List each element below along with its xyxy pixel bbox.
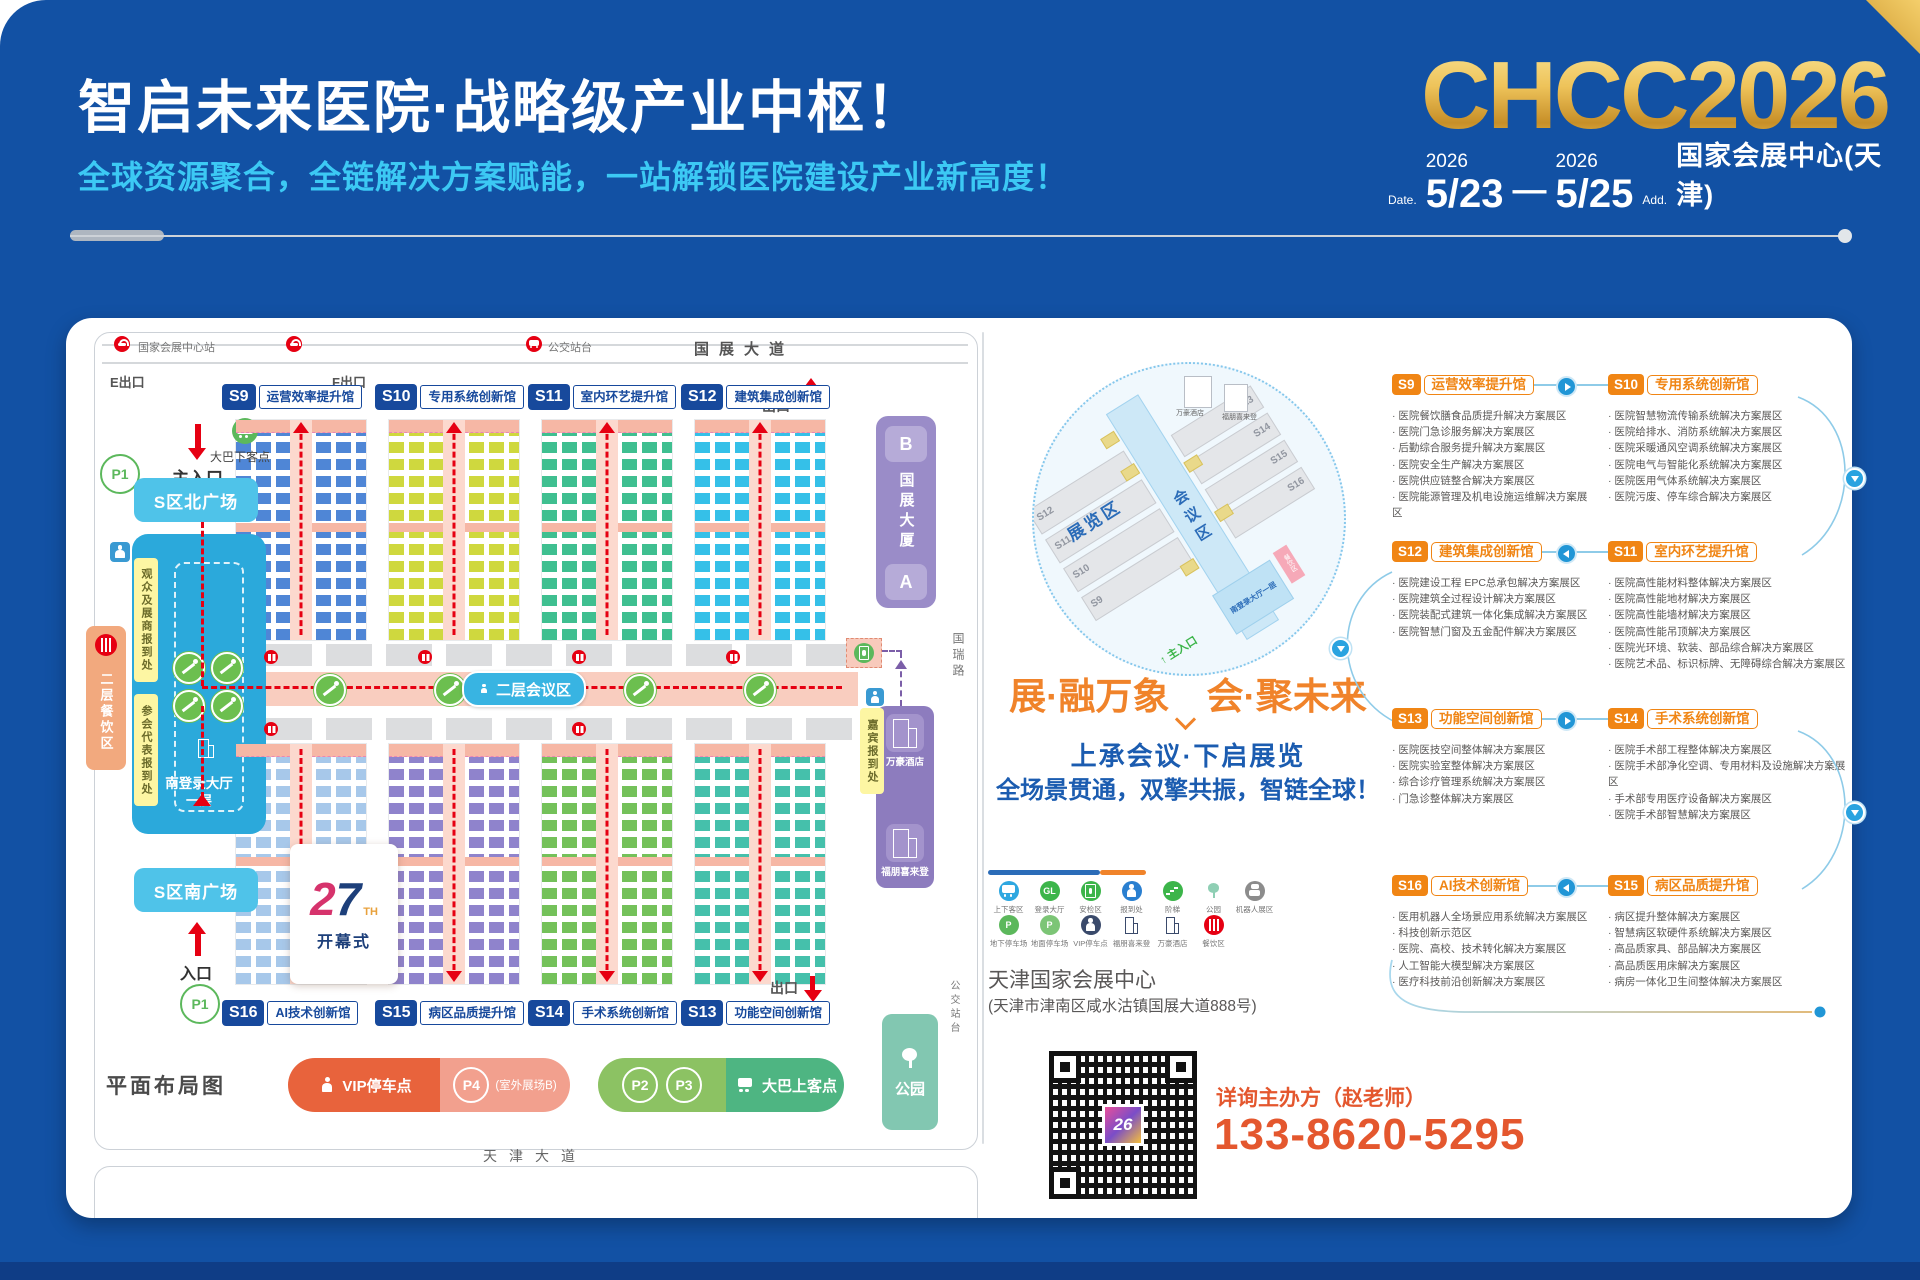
- opening-ceremony-box: 27TH 开幕式: [290, 844, 398, 984]
- hall-label-s13: S13功能空间创新馆: [681, 1000, 830, 1026]
- marriott-hotel-icon: [886, 714, 924, 752]
- hotels-block: 万豪酒店 福朋喜来登: [876, 706, 934, 888]
- hall-block-s13: [695, 744, 825, 984]
- ground-parking-icon: P: [1040, 915, 1060, 935]
- vip-route-arrow: [895, 660, 907, 669]
- legend-item: VIP停车点: [1070, 915, 1111, 949]
- p2-icon: P2: [622, 1067, 658, 1103]
- fourpoints-hotel-icon: [886, 824, 924, 862]
- stairs-icon: [1163, 881, 1183, 901]
- chcc2026-logo: CHCC2026: [1388, 48, 1888, 144]
- hall-card-s16: S16AI技术创新馆: [1392, 875, 1528, 896]
- route-dashed-line: [201, 522, 204, 686]
- metro-icon: [114, 336, 130, 352]
- hall-block-s11: [542, 420, 672, 640]
- hall-card-s9: S9运营效率提升馆: [1392, 374, 1534, 395]
- legend-item: P地面停车场: [1029, 915, 1070, 949]
- venue-minimap: S12 S11 S10 S9 S13 S14 S15 S16 展览区 会议区 南…: [1032, 362, 1346, 676]
- hall-label-s12: S12建筑集成创新馆: [681, 384, 830, 410]
- meeting-rooms-row: [206, 644, 856, 666]
- legend-item: 报到处: [1111, 881, 1152, 915]
- divider-dot: [1838, 229, 1852, 243]
- qr-finder: [1049, 1051, 1081, 1083]
- restroom-icon: [726, 650, 740, 664]
- security-gate-icon: [1081, 881, 1101, 901]
- floorplan-map: 国家会展中心站 公交站台 国展大道 E出口 F出口 S9运营效率提升馆S10专用…: [94, 332, 976, 1148]
- opening-logo: 2: [310, 873, 336, 925]
- legend-row-2: P地下停车场P地面停车场VIP停车点福朋喜来登万豪酒店餐饮区: [988, 915, 1234, 949]
- legend-item: 公园: [1193, 881, 1234, 915]
- route-arrow-head: [193, 794, 211, 806]
- legend-item: 安检区: [1070, 881, 1111, 915]
- hall-block-s12: [695, 420, 825, 640]
- hall-card-s12: S12建筑集成创新馆: [1392, 541, 1542, 562]
- legend-item: P地下停车场: [988, 915, 1029, 949]
- park-box: 公园: [882, 1014, 938, 1130]
- hall-label-s16: S16AI技术创新馆: [222, 1000, 358, 1026]
- security-check-box: [846, 638, 882, 668]
- connector-arrow-icon: [1556, 710, 1577, 731]
- minimap-hotel-building: [1184, 376, 1212, 408]
- building-icon: [194, 736, 218, 760]
- road-label-guozhan-avenue: 国展大道: [694, 338, 794, 359]
- arc-chevron-down: [1844, 468, 1865, 489]
- qr-center-logo: 26: [1102, 1104, 1144, 1146]
- minimap-hotel-label: 万豪酒店: [1176, 408, 1204, 418]
- hall-label-s9: S9运营效率提升馆: [222, 384, 362, 410]
- dining-icon: [95, 634, 117, 656]
- bus-drop-label: 大巴下客点: [210, 448, 270, 465]
- exit-e-label: E出口: [110, 372, 145, 391]
- exit-bottom-label: 出口: [770, 978, 798, 998]
- day-end: 5/25: [1556, 174, 1634, 214]
- legend-item: 机器人展区: [1234, 881, 1275, 915]
- arc-chevron-down: [1330, 638, 1351, 659]
- qr-code: 26: [1044, 1046, 1202, 1204]
- venue-name-text: 天津国家会展中心: [988, 964, 1156, 994]
- south-plaza: S区南广场: [134, 868, 258, 912]
- entrance-arrow: [195, 932, 201, 956]
- dining-icon: [1204, 915, 1224, 935]
- contact-label: 详询主办方（赵老师）: [1216, 1082, 1426, 1112]
- security-gate-icon: [854, 643, 874, 663]
- road-label-guorui: 国瑞路: [950, 632, 967, 680]
- registration-icon: [1122, 881, 1142, 901]
- legend-item: GL登录大厅: [1029, 881, 1070, 915]
- bus-icon: [999, 881, 1019, 901]
- connector-arrow-icon: [1556, 877, 1577, 898]
- legend-row-1: 上下客区GL登录大厅安检区报到处阶梯公园机器人展区: [988, 881, 1275, 915]
- legend-item: 上下客区: [988, 881, 1029, 915]
- people-icon: [477, 682, 491, 696]
- bus-stop-icon: [526, 336, 542, 352]
- restroom-icon: [264, 650, 278, 664]
- hall-label-s14: S14手术系统创新馆: [528, 1000, 677, 1026]
- restroom-icon: [418, 650, 432, 664]
- p4-icon: P4: [453, 1067, 489, 1103]
- legend-item: 阶梯: [1152, 881, 1193, 915]
- vip-parking-pill: VIP停车点 P4 (室外展场B): [288, 1058, 570, 1112]
- hall-label-s11: S11室内环艺提升馆: [528, 384, 676, 410]
- year-start: 2026: [1426, 152, 1504, 171]
- venue-address: (天津市津南区咸水沽镇国展大道888号): [988, 994, 1257, 1016]
- legend-divider-blue: [988, 870, 1100, 875]
- marriott-hotel-icon: [1163, 915, 1183, 935]
- bus-platform-label: 公交站台: [946, 980, 961, 1036]
- restroom-icon: [110, 542, 130, 562]
- park-icon: [1204, 881, 1224, 901]
- guozhan-tower: B 国展大厦 A: [876, 416, 936, 608]
- connector-arrow-icon: [1556, 376, 1577, 397]
- fourpoints-label: 福朋喜来登: [876, 864, 934, 878]
- vip-route-dashed: [882, 650, 902, 652]
- escalator-icon: [211, 690, 243, 722]
- vip-parking-icon: [1081, 915, 1101, 935]
- listing-connector-arcs: [1300, 360, 1920, 1040]
- hall-card-s10: S10专用系统创新馆: [1608, 374, 1758, 395]
- road-strip: [94, 1166, 978, 1218]
- second-floor-dining: 二层餐饮区: [86, 626, 126, 770]
- hall-label-s10: S10专用系统创新馆: [375, 384, 524, 410]
- hall-card-s13: S13功能空间创新馆: [1392, 708, 1542, 729]
- hall-card-s11: S11室内环艺提升馆: [1608, 541, 1757, 562]
- venue-name: 国家会展中心(天津): [1676, 134, 1888, 212]
- main-entrance-arrow-head: [188, 448, 206, 460]
- page-title: 智启未来医院·战略级产业中枢！: [78, 62, 925, 144]
- hall-card-s14: S14手术系统创新馆: [1608, 708, 1758, 729]
- date-label: Date.: [1388, 193, 1417, 207]
- restroom-icon: [572, 722, 586, 736]
- bus-pickup-icon: [733, 1073, 757, 1097]
- bus-stop-label: 公交站台: [548, 339, 592, 355]
- restroom-icon: [572, 650, 586, 664]
- hall-block-s10: [389, 420, 519, 640]
- visitor-registration-label: 观众及展商报到处: [134, 558, 158, 682]
- restroom-icon: [264, 722, 278, 736]
- page-subtitle: 全球资源聚合，全链解决方案赋能，一站解锁医院建设产业新高度！: [78, 152, 1068, 198]
- escalator-icon: [744, 674, 776, 706]
- bottom-band: [0, 1262, 1920, 1280]
- vip-person-icon: [316, 1074, 338, 1096]
- metro-icon: [286, 336, 302, 352]
- addr-label: Add.: [1642, 193, 1667, 207]
- contact-phone: 133-8620-5295: [1214, 1110, 1525, 1160]
- delegate-registration-label: 参会代表报到处: [134, 694, 158, 806]
- legend-item: 餐饮区: [1193, 915, 1234, 949]
- vip-registration-label: 嘉宾报到处: [860, 708, 884, 794]
- escalator-icon: [314, 674, 346, 706]
- hall-block-s14: [542, 744, 672, 984]
- minimap-hotel-building: [1224, 384, 1248, 412]
- minimap-entrance-label: ↑ 主入口: [1157, 632, 1201, 668]
- marriott-label: 万豪酒店: [876, 754, 934, 768]
- entrance-label: 入口: [180, 960, 212, 984]
- tower-a-block: A: [885, 564, 927, 600]
- plan-title: 平面布局图: [106, 1070, 226, 1100]
- legend-divider-orange: [1100, 870, 1146, 875]
- route-dashed-line: [201, 706, 204, 798]
- tower-label: 国展大厦: [876, 468, 936, 556]
- p3-icon: P3: [666, 1067, 702, 1103]
- lobby-label: 南登录大厅: [152, 772, 246, 792]
- p1-parking-icon: P1: [180, 984, 220, 1024]
- legend-item: 万豪酒店: [1152, 915, 1193, 949]
- panel-divider: [982, 332, 984, 1144]
- hall-label-s15: S15病区品质提升馆: [375, 1000, 524, 1026]
- underground-parking-icon: P: [999, 915, 1019, 935]
- restroom-icon: [866, 688, 884, 706]
- year-end: 2026: [1556, 152, 1634, 171]
- day-start: 5/23: [1426, 174, 1504, 214]
- fourpoints-hotel-icon: [1122, 915, 1142, 935]
- escalator-icon: [211, 652, 243, 684]
- arc-chevron-down: [1844, 802, 1865, 823]
- parking-bus-pill: P2 P3 大巴上客点: [598, 1058, 844, 1112]
- north-plaza: S区北广场: [134, 478, 258, 522]
- date-dash: —: [1513, 171, 1547, 210]
- qr-finder: [1049, 1167, 1081, 1199]
- tower-b-block: B: [885, 426, 927, 462]
- main-entrance-arrow: [195, 424, 201, 450]
- hall-card-s15: S15病区品质提升馆: [1608, 875, 1758, 896]
- opening-label: 开幕式: [317, 928, 371, 952]
- minimap-hotel-label: 福朋喜来登: [1222, 412, 1257, 422]
- road-label-tianjin-avenue: 天津大道: [94, 1146, 976, 1166]
- conference-zone-badge: 二层会议区: [462, 671, 586, 707]
- road-line: [102, 362, 968, 364]
- legend-item: 福朋喜来登: [1111, 915, 1152, 949]
- login-hall-icon: GL: [1040, 881, 1060, 901]
- divider-line: [70, 235, 1850, 237]
- robot-icon: [1245, 881, 1265, 901]
- metro-station-label: 国家会展中心站: [138, 339, 215, 355]
- event-dates: Date. 2026 5/23 — 2026 5/25 Add. 国家会展中心(…: [1388, 134, 1888, 214]
- park-tree-icon: [897, 1046, 923, 1072]
- entrance-arrow-head: [188, 922, 206, 934]
- escalator-icon: [624, 674, 656, 706]
- connector-arrow-icon: [1556, 543, 1577, 564]
- qr-finder: [1165, 1051, 1197, 1083]
- hall-block-s15: [389, 744, 519, 984]
- meeting-rooms-row: [206, 718, 856, 740]
